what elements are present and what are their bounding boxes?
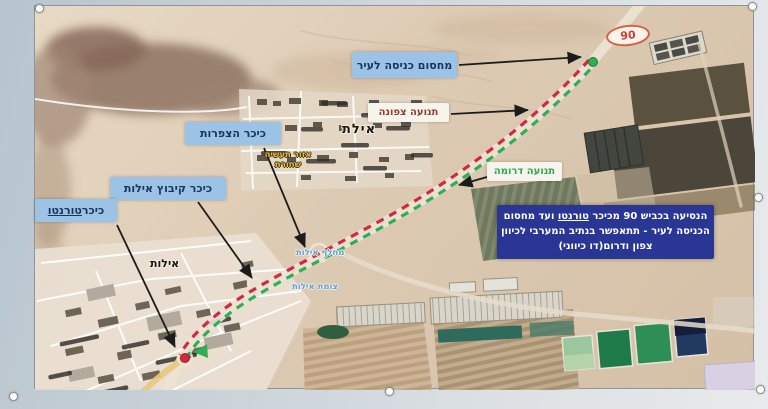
selection-handle-mid-right[interactable]	[754, 193, 763, 202]
map-label-eilat: אילת	[342, 122, 376, 137]
callout-toronto-name: טורנטו	[48, 204, 82, 217]
selection-handle-bottom-right[interactable]	[756, 385, 765, 394]
info-line1-pre: הנסיעה בכביש 90 מכיכר	[589, 211, 707, 222]
selection-handle-bottom-left[interactable]	[9, 392, 18, 401]
arrow-north-traffic	[451, 110, 528, 114]
map-label-shehoret-line2: שחורת	[275, 160, 301, 170]
selection-handle-top-left[interactable]	[35, 4, 44, 13]
map-label-shehoret-line1: אזור תעשיה	[265, 150, 312, 160]
callout-toronto-prefix: כיכר	[82, 204, 104, 217]
info-line3: צפון ודרום(דו כיווני)	[558, 241, 652, 252]
map-label-eilot: אילות	[150, 257, 179, 270]
toronto-point-marker	[181, 354, 190, 363]
callout-toronto-roundabout: כיכר טורנטו	[35, 199, 117, 222]
screen: אילת אילות אזור תעשיה שחורת מחלף אילות צ…	[0, 0, 768, 409]
selection-handle-bottom-center[interactable]	[385, 387, 394, 396]
callout-north-traffic: תנועה צפונה	[368, 103, 449, 122]
callout-kibbutz-eilot-roundabout: כיכר קיבוץ אילות	[110, 177, 226, 200]
selection-handle-top-right[interactable]	[748, 2, 757, 11]
callout-south-traffic: תנועה דרומה	[487, 162, 562, 181]
route-info-box: הנסיעה בכביש 90 מכיכר טורנטו ועד מחסום ה…	[497, 205, 714, 259]
info-line1-underline: טורנטו	[558, 211, 589, 222]
map-label-eilot-junction: צומת אילות	[292, 282, 338, 292]
callout-barrier: מחסום כניסה לעיר	[352, 52, 457, 78]
info-line1-post: ועד מחסום	[504, 211, 558, 222]
info-line2: הכניסה לעיר - תתאפשר בנתיב המערבי לכיוון	[501, 226, 710, 237]
map-label-shehoret-industrial: אזור תעשיה שחורת	[252, 150, 324, 170]
callout-tsofrot-roundabout: כיכר הצפרות	[185, 122, 281, 145]
map-label-eilot-interchange: מחלף אילות	[296, 248, 344, 258]
barrier-point-marker	[589, 58, 598, 67]
